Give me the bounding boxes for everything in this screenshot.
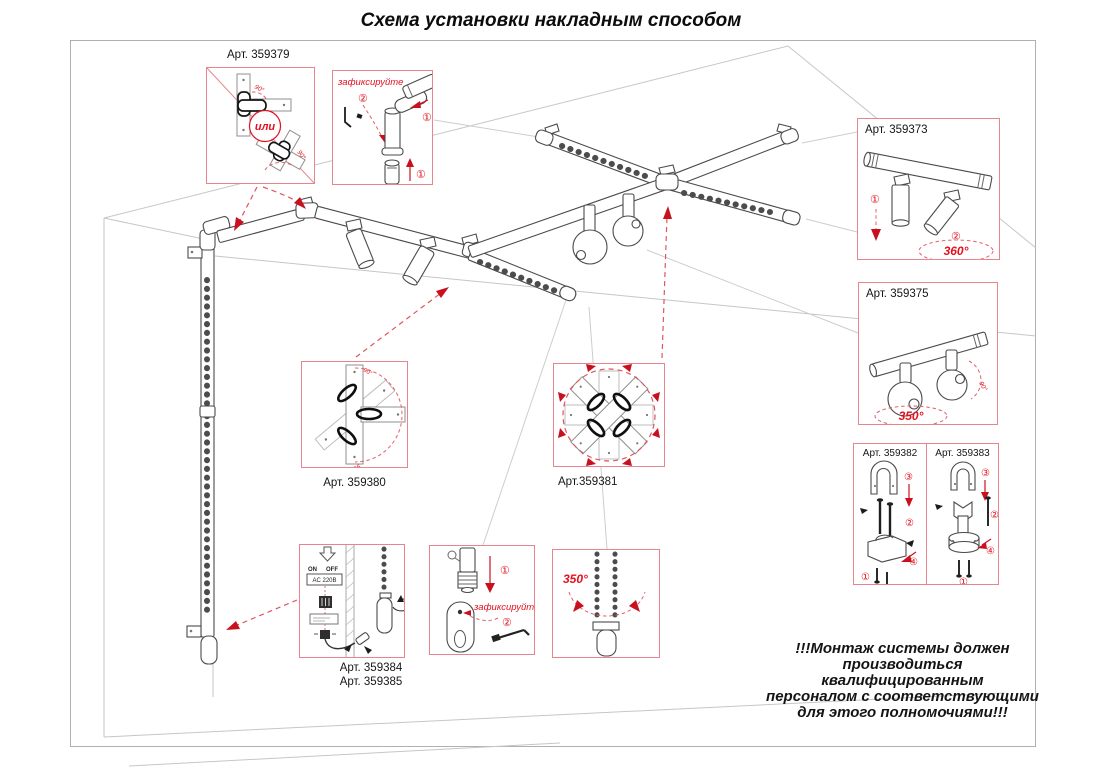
callout-art-359375: Арт. 359375 90° 350° [858,282,998,425]
driver-label-icon [310,614,338,624]
callout-rotation-350: 350° [552,549,660,658]
t-plate-connector-icon: 90° 90° [302,362,407,467]
arrow-down-icon [320,547,335,561]
warning-line: персоналом с соответствующими [760,689,1045,705]
svg-text:350°: 350° [899,409,924,423]
svg-text:350°: 350° [563,572,588,586]
svg-text:①: ① [861,572,870,583]
callout-art-359379: 90° 90° или [206,67,315,184]
callout-art-359373: Арт. 359373 ① ② 360° [857,118,1000,260]
fix-connector-icon: зафиксируйте ② ① ① [333,71,432,184]
svg-text:②: ② [905,518,914,529]
svg-text:AC 220В: AC 220В [312,578,336,584]
art-label-359375: Арт. 359375 [866,288,929,300]
ceiling-cross-track [468,124,802,264]
art-label-359373: Арт. 359373 [865,124,928,136]
callout-art-359384: ON OFF AC 220В [299,544,405,658]
wall-track [187,216,231,664]
svg-text:90°: 90° [362,368,373,378]
callout-art-359380: 90° 90° [301,361,408,468]
art-label-359383: Арт. 359383 [927,448,998,459]
art-label-359382: Арт. 359382 [854,448,926,459]
svg-text:или: или [255,121,276,133]
svg-text:①: ① [959,577,968,584]
svg-text:зафиксируйте: зафиксируйте [337,77,403,88]
svg-text:①: ① [500,565,510,577]
star-plate-connector-icon [554,364,664,466]
installation-warning: !!!Монтаж системы должен производиться к… [760,641,1045,721]
svg-text:①: ① [422,112,432,124]
chain-rotation-icon: 350° [553,550,659,657]
ceiling-edge-track [216,197,577,302]
spot-track-icon: ① ② 360° [858,119,999,259]
svg-text:③: ③ [981,468,990,479]
svg-text:④: ④ [986,546,995,557]
callout-art-359381 [553,363,665,467]
bracket-assembly-382-icon: ③ ② ④ ① [854,444,926,584]
diagram-canvas: Схема установки накладным способом [0,0,1102,778]
svg-text:②: ② [502,617,512,629]
callout-fix-bottom: ① зафиксируйте ② [429,545,535,655]
art-label-359380: Арт. 359380 [301,477,408,489]
svg-text:90°: 90° [977,380,989,393]
svg-text:①: ① [416,169,426,181]
corner-connector-options-icon: 90° 90° или [207,68,314,183]
svg-text:360°: 360° [944,244,969,258]
art-label-359384: Арт. 359384 [311,662,431,674]
svg-text:③: ③ [904,472,913,483]
svg-text:①: ① [870,194,880,206]
warning-line: !!!Монтаж системы должен [760,641,1045,657]
power-connection-icon: ON OFF AC 220В [300,545,404,657]
callout-art-359382: Арт. 359382 ③ ② ④ ① [853,443,927,585]
warning-line: для этого полномочиями!!! [760,705,1045,721]
svg-text:зафиксируйте: зафиксируйте [473,602,534,613]
callout-art-359383: Арт. 359383 ③ ② ④ ① [926,443,999,585]
art-label-359385: Арт. 359385 [311,676,431,688]
bracket-assembly-383-icon: ③ ② ④ ① [927,444,998,584]
svg-text:②: ② [951,231,961,243]
svg-text:ON: ON [308,567,317,573]
svg-text:90°: 90° [253,83,266,95]
svg-text:OFF: OFF [326,567,338,573]
fix-pendant-icon: ① зафиксируйте ② [430,546,534,654]
sphere-track-icon: 90° 350° [859,283,997,424]
warning-line: производиться квалифицированным [760,657,1045,689]
art-label-359381: Арт.359381 [558,476,665,488]
callout-fix-top: зафиксируйте ② ① ① [332,70,433,185]
art-label-359379: Арт. 359379 [227,49,290,61]
svg-text:②: ② [358,93,368,105]
svg-text:②: ② [990,510,998,521]
